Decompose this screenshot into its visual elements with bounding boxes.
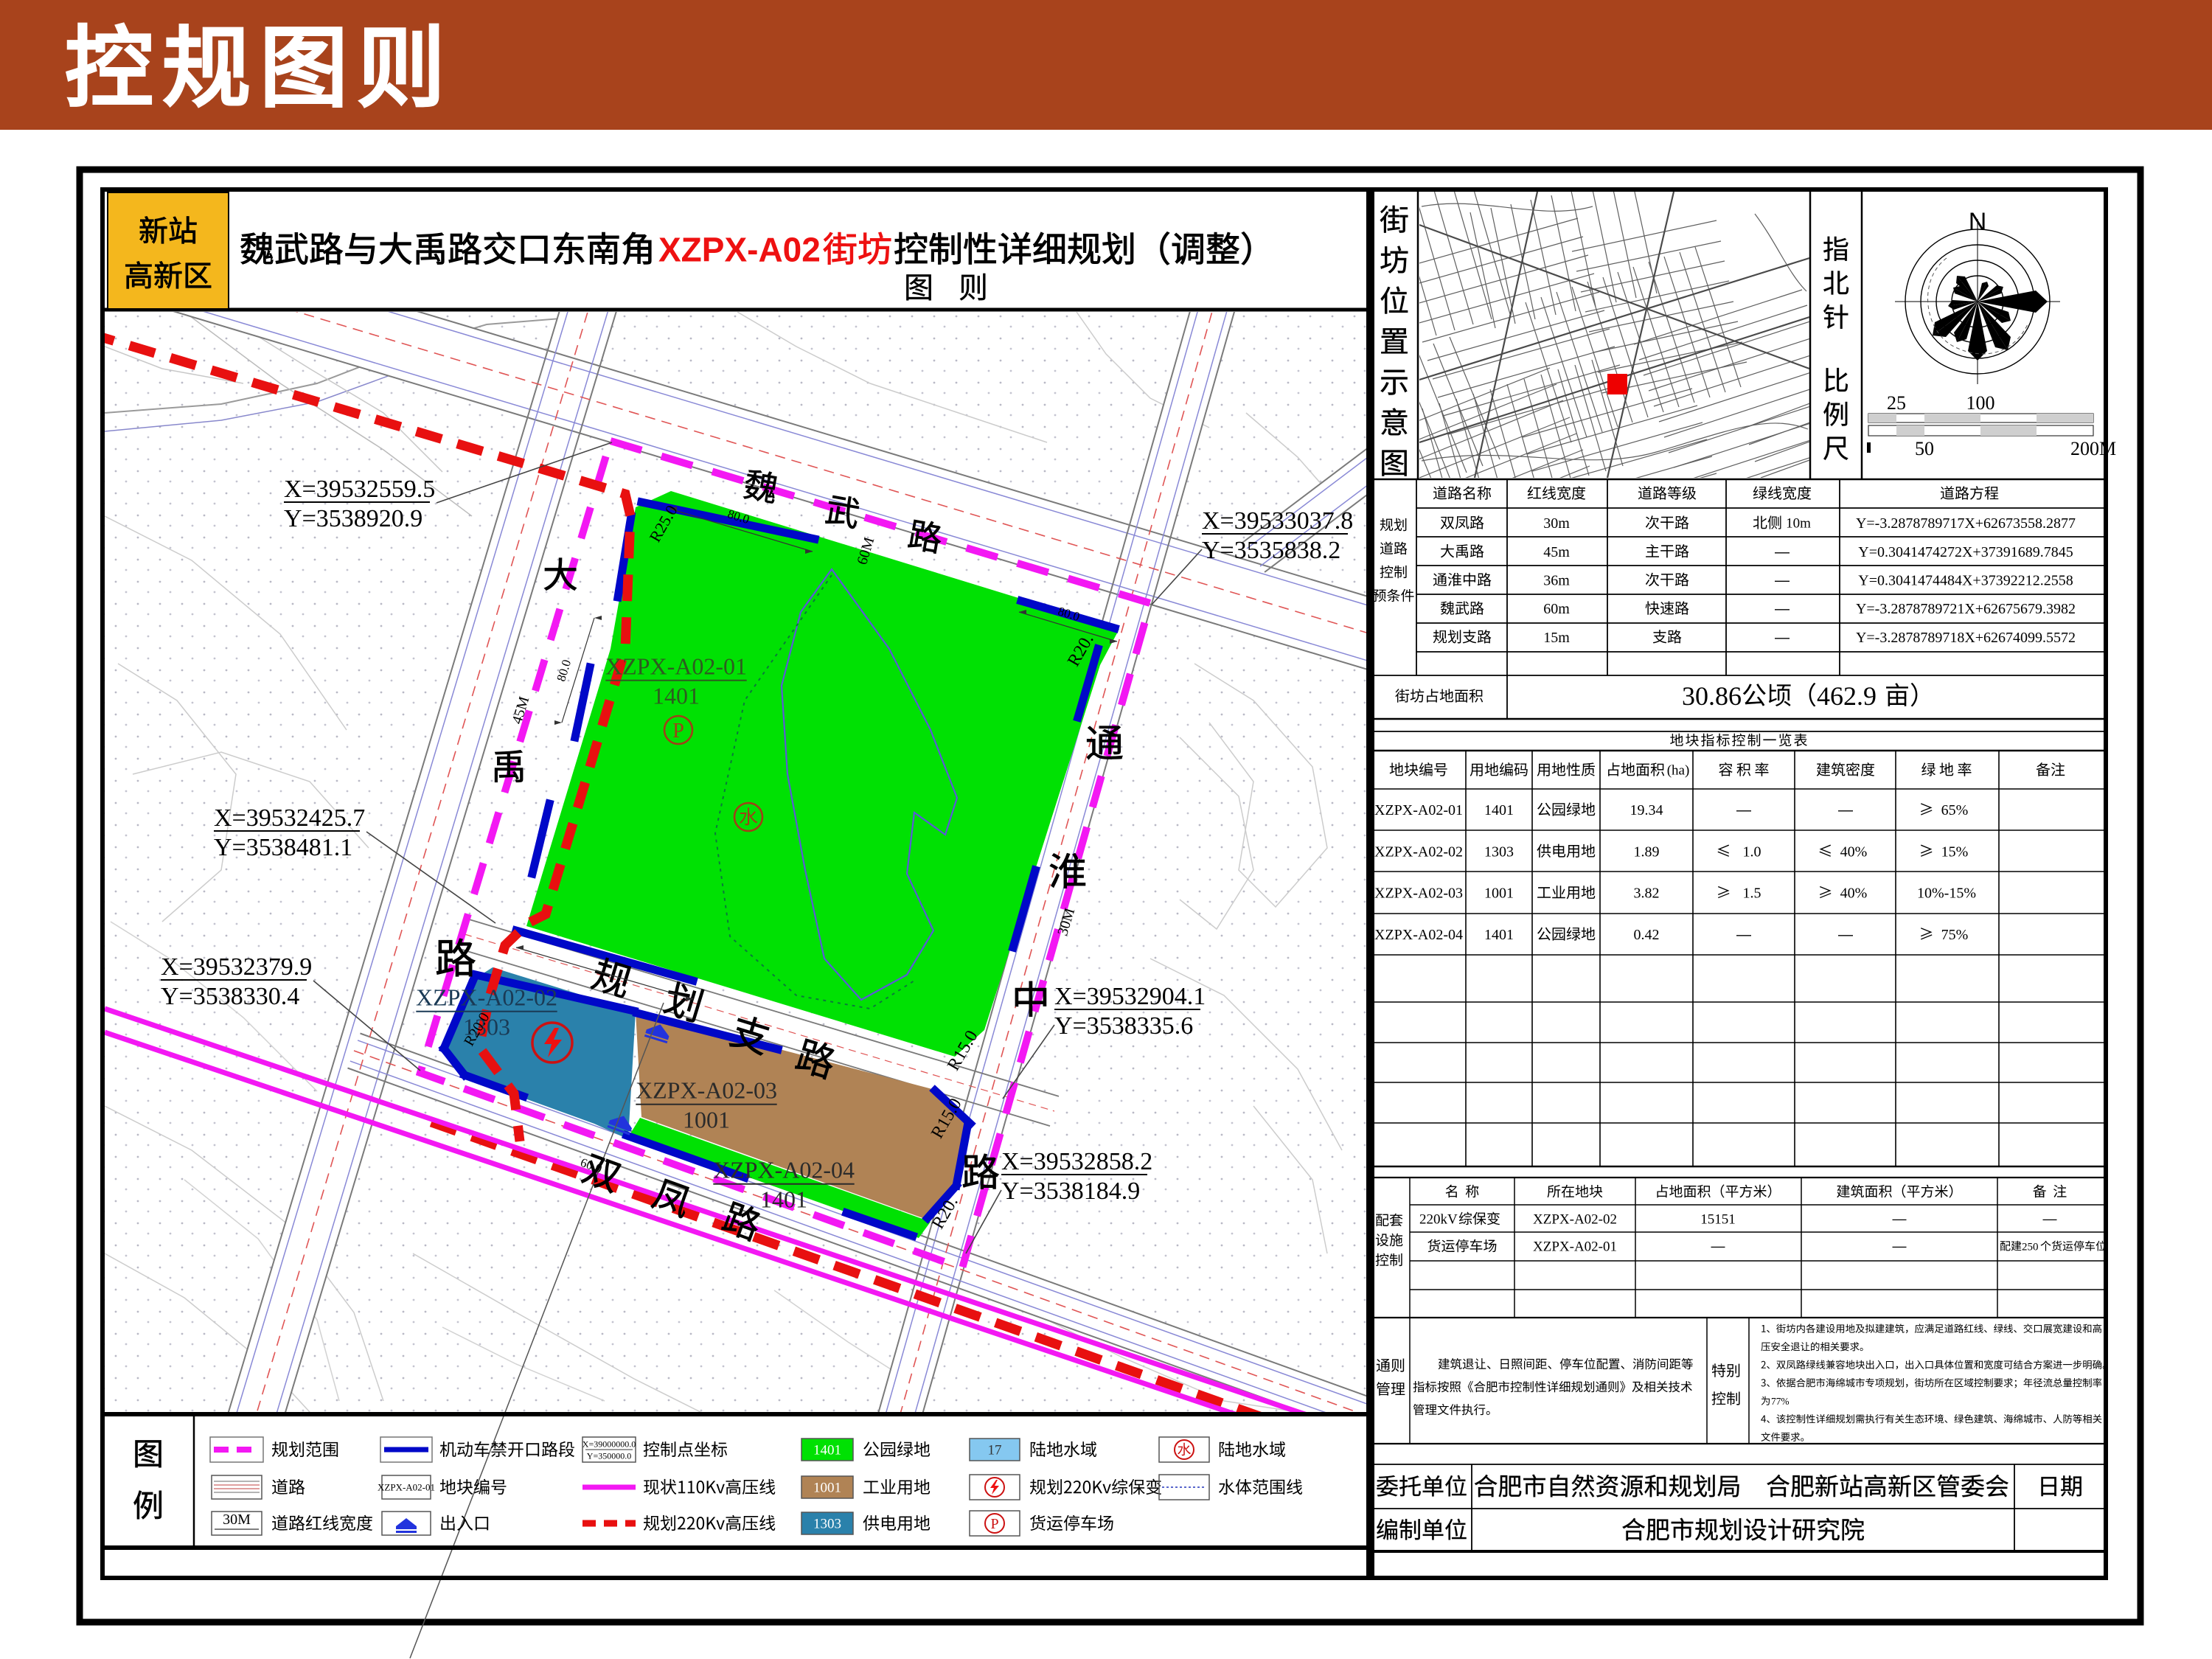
svg-text:60m: 60m — [1543, 601, 1570, 617]
svg-text:XZPX-A02-01: XZPX-A02-01 — [1374, 802, 1463, 818]
svg-text:1.89: 1.89 — [1634, 844, 1660, 860]
svg-text:Y=-3.2878789721X+62675679.3982: Y=-3.2878789721X+62675679.3982 — [1856, 601, 2076, 617]
svg-text:XZPX-A02-03: XZPX-A02-03 — [636, 1077, 777, 1103]
svg-text:Y=3538920.9: Y=3538920.9 — [284, 505, 422, 532]
svg-text:1.0: 1.0 — [1743, 844, 1761, 860]
svg-text:220kV: 220kV — [1419, 1212, 1458, 1228]
svg-text:Y=-3.2878789718X+62674099.5572: Y=-3.2878789718X+62674099.5572 — [1856, 630, 2076, 646]
svg-text:X=39532858.2: X=39532858.2 — [1001, 1148, 1152, 1175]
svg-text:Y=3535838.2: Y=3535838.2 — [1202, 537, 1340, 564]
svg-text:Y=3538330.4: Y=3538330.4 — [161, 983, 299, 1010]
svg-text:15%: 15% — [1941, 844, 1969, 860]
svg-text:65%: 65% — [1941, 802, 1969, 818]
svg-text:—: — — [1893, 1239, 1907, 1255]
svg-text:XZPX-A02-03: XZPX-A02-03 — [1374, 886, 1463, 902]
svg-text:1001: 1001 — [1484, 886, 1514, 902]
svg-text:100: 100 — [1966, 392, 1995, 414]
svg-text:Y=-3.2878789717X+62673558.2877: Y=-3.2878789717X+62673558.2877 — [1856, 515, 2076, 532]
svg-text:15151: 15151 — [1700, 1212, 1736, 1228]
svg-text:19.34: 19.34 — [1630, 802, 1663, 818]
svg-text:XZPX-A02-01: XZPX-A02-01 — [378, 1482, 435, 1493]
svg-text:Y=0.3041474272X+37391689.7845: Y=0.3041474272X+37391689.7845 — [1858, 544, 2073, 560]
svg-text:—: — — [1893, 1212, 1907, 1228]
svg-text:200M: 200M — [2070, 438, 2116, 459]
svg-text:Y=3538184.9: Y=3538184.9 — [1001, 1178, 1140, 1205]
svg-text:1303: 1303 — [813, 1517, 841, 1532]
svg-text:50: 50 — [1915, 438, 1934, 459]
svg-text:—: — — [1775, 630, 1790, 646]
svg-text:1401: 1401 — [653, 682, 700, 709]
svg-text:—: — — [1775, 601, 1790, 617]
svg-text:Y=3538335.6: Y=3538335.6 — [1054, 1012, 1193, 1040]
svg-text:X=39533037.8: X=39533037.8 — [1202, 507, 1353, 535]
svg-text:77%: 77% — [1771, 1396, 1790, 1407]
svg-text:17: 17 — [988, 1443, 1002, 1458]
svg-text:X=39532379.9: X=39532379.9 — [161, 953, 312, 981]
svg-text:Y=350000.0: Y=350000.0 — [587, 1450, 631, 1461]
svg-text:40%: 40% — [1840, 886, 1868, 902]
svg-text:XZPX-A02-02: XZPX-A02-02 — [1533, 1212, 1617, 1228]
svg-text:—: — — [1838, 802, 1853, 818]
svg-text:250: 250 — [2022, 1241, 2039, 1253]
svg-text:X=39532904.1: X=39532904.1 — [1054, 983, 1206, 1010]
svg-text:462.9: 462.9 — [1817, 681, 1877, 711]
svg-text:—: — — [1775, 544, 1790, 560]
svg-text:45m: 45m — [1543, 544, 1570, 560]
svg-text:1.5: 1.5 — [1743, 886, 1761, 902]
svg-text:40%: 40% — [1840, 844, 1868, 860]
svg-text:XZPX-A02-04: XZPX-A02-04 — [713, 1156, 855, 1183]
svg-text:(ha): (ha) — [1667, 763, 1690, 779]
svg-text:10m: 10m — [1786, 516, 1811, 532]
svg-text:P: P — [672, 720, 684, 742]
svg-text:36m: 36m — [1543, 573, 1570, 589]
svg-text:XZPX-A02-01: XZPX-A02-01 — [1533, 1239, 1617, 1255]
svg-text:1401: 1401 — [1484, 802, 1514, 818]
svg-text:XZPX-A02-02: XZPX-A02-02 — [416, 984, 557, 1010]
svg-text:1401: 1401 — [760, 1186, 807, 1212]
svg-text:15m: 15m — [1543, 630, 1570, 646]
svg-text:1001: 1001 — [683, 1106, 730, 1133]
svg-text:Y=3538481.1: Y=3538481.1 — [214, 834, 352, 861]
svg-text:XZPX-A02-02: XZPX-A02-02 — [1374, 844, 1463, 860]
svg-text:X=39532425.7: X=39532425.7 — [214, 804, 365, 832]
svg-text:30.86: 30.86 — [1682, 681, 1742, 711]
svg-text:XZPX-A02: XZPX-A02 — [658, 230, 821, 268]
svg-text:—: — — [2043, 1212, 2057, 1228]
svg-text:—: — — [1838, 927, 1853, 943]
svg-text:X=39000000.0: X=39000000.0 — [582, 1439, 636, 1449]
svg-text:—: — — [1736, 927, 1751, 943]
svg-text:N: N — [1969, 208, 1987, 236]
svg-text:1001: 1001 — [813, 1481, 841, 1496]
svg-text:—: — — [1736, 802, 1751, 818]
svg-text:P: P — [990, 1516, 998, 1532]
svg-text:—: — — [1711, 1239, 1725, 1255]
svg-text:—: — — [1775, 573, 1790, 589]
svg-text:1401: 1401 — [813, 1443, 841, 1458]
svg-text:1303: 1303 — [1484, 844, 1514, 860]
svg-text:3.82: 3.82 — [1634, 886, 1660, 902]
svg-text:XZPX-A02-01: XZPX-A02-01 — [605, 653, 747, 679]
svg-text:30m: 30m — [1543, 515, 1570, 532]
svg-text:1401: 1401 — [1484, 927, 1514, 943]
svg-text:25: 25 — [1887, 392, 1906, 414]
svg-text:X=39532559.5: X=39532559.5 — [284, 476, 435, 503]
svg-text:Y=0.3041474484X+37392212.2558: Y=0.3041474484X+37392212.2558 — [1858, 573, 2073, 589]
svg-text:75%: 75% — [1941, 927, 1969, 943]
svg-text:XZPX-A02-04: XZPX-A02-04 — [1374, 927, 1463, 943]
svg-text:30M: 30M — [223, 1512, 251, 1528]
svg-text:0.42: 0.42 — [1634, 927, 1660, 943]
svg-text:10%-15%: 10%-15% — [1917, 886, 1976, 902]
